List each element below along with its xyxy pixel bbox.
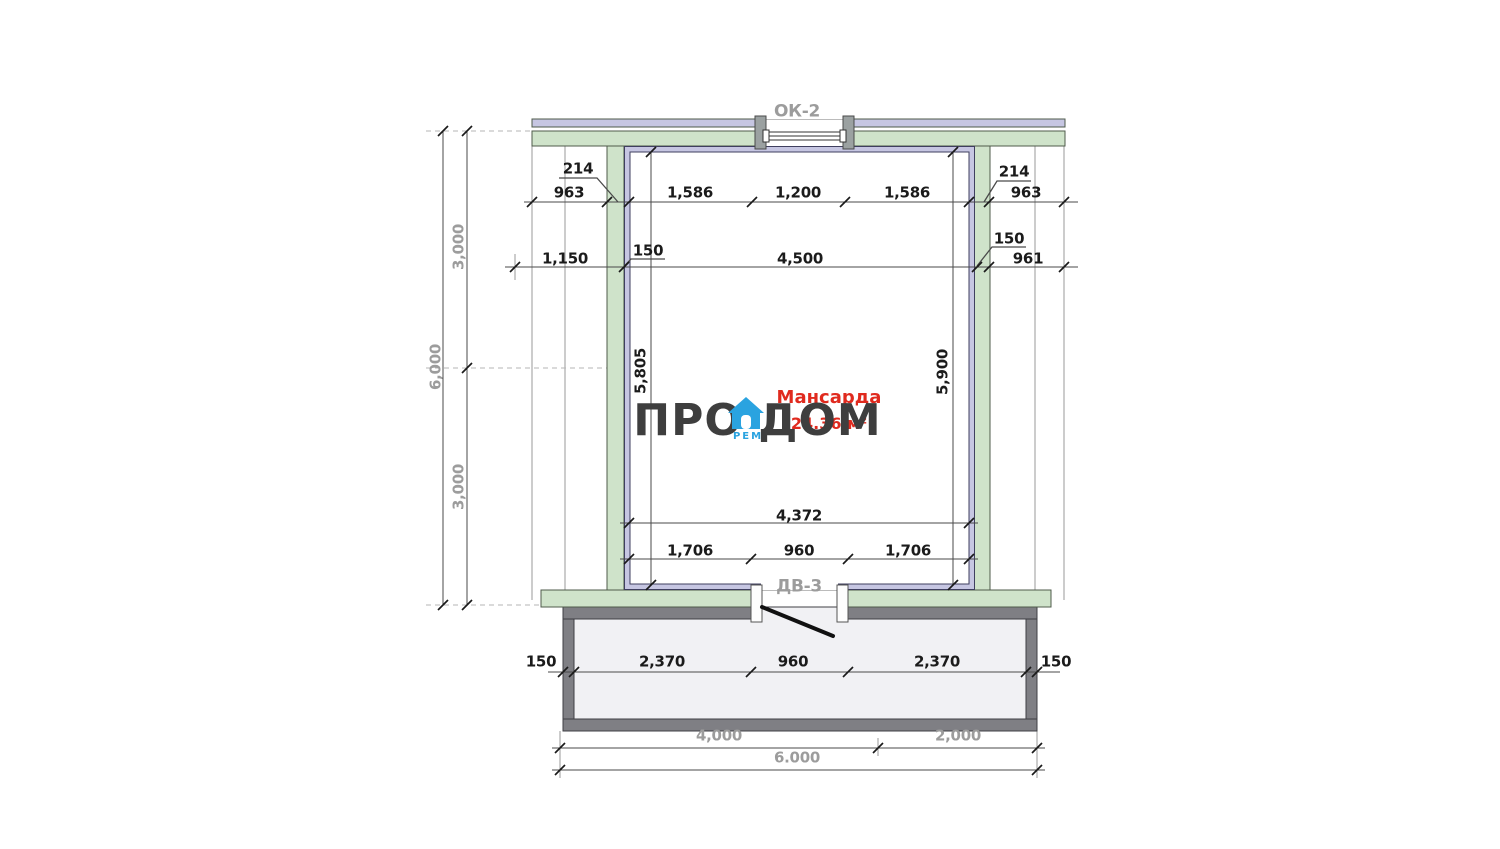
dim-6000-annex: 6.000 bbox=[774, 751, 820, 766]
dim-5805: 5,805 bbox=[634, 348, 649, 394]
dim-4000: 4,000 bbox=[696, 729, 742, 744]
dim-1150: 1,150 bbox=[542, 252, 588, 267]
dim-214-left: 214 bbox=[563, 162, 593, 177]
door-label: ДВ-3 bbox=[776, 579, 822, 596]
dim-963-left: 963 bbox=[554, 186, 584, 201]
dim-961: 961 bbox=[1013, 252, 1043, 267]
dim-annex-2370-left: 2,370 bbox=[639, 655, 685, 670]
dim-4500: 4,500 bbox=[777, 252, 823, 267]
dim-1706-left: 1,706 bbox=[667, 544, 713, 559]
dim-annex-150-right: 150 bbox=[1041, 655, 1071, 670]
dim-annex-960: 960 bbox=[778, 655, 808, 670]
dim-4372: 4,372 bbox=[776, 509, 822, 524]
dim-5900: 5,900 bbox=[936, 349, 951, 395]
dim-1586-left: 1,586 bbox=[667, 186, 713, 201]
floor-plan: ОК-2 ДВ-3 963 214 1,586 1,200 1,586 214 … bbox=[0, 0, 1500, 849]
dim-1586-right: 1,586 bbox=[884, 186, 930, 201]
dim-1200: 1,200 bbox=[775, 186, 821, 201]
dim-6000-total: 6,000 bbox=[429, 344, 444, 390]
dim-150-right: 150 bbox=[994, 232, 1024, 247]
dim-963-right: 963 bbox=[1011, 186, 1041, 201]
dim-3000-upper: 3,000 bbox=[452, 224, 467, 270]
window-label: ОК-2 bbox=[774, 104, 820, 121]
dim-annex-2370-right: 2,370 bbox=[914, 655, 960, 670]
dim-3000-lower: 3,000 bbox=[452, 464, 467, 510]
watermark-dom: ДОМ bbox=[758, 399, 881, 443]
interior-lining bbox=[625, 147, 975, 592]
dim-214-right: 214 bbox=[999, 165, 1029, 180]
dim-annex-150-left: 150 bbox=[526, 655, 556, 670]
dim-150-left: 150 bbox=[633, 244, 663, 259]
dim-2000: 2,000 bbox=[935, 729, 981, 744]
dim-1706-right: 1,706 bbox=[885, 544, 931, 559]
dim-960-door: 960 bbox=[784, 544, 814, 559]
